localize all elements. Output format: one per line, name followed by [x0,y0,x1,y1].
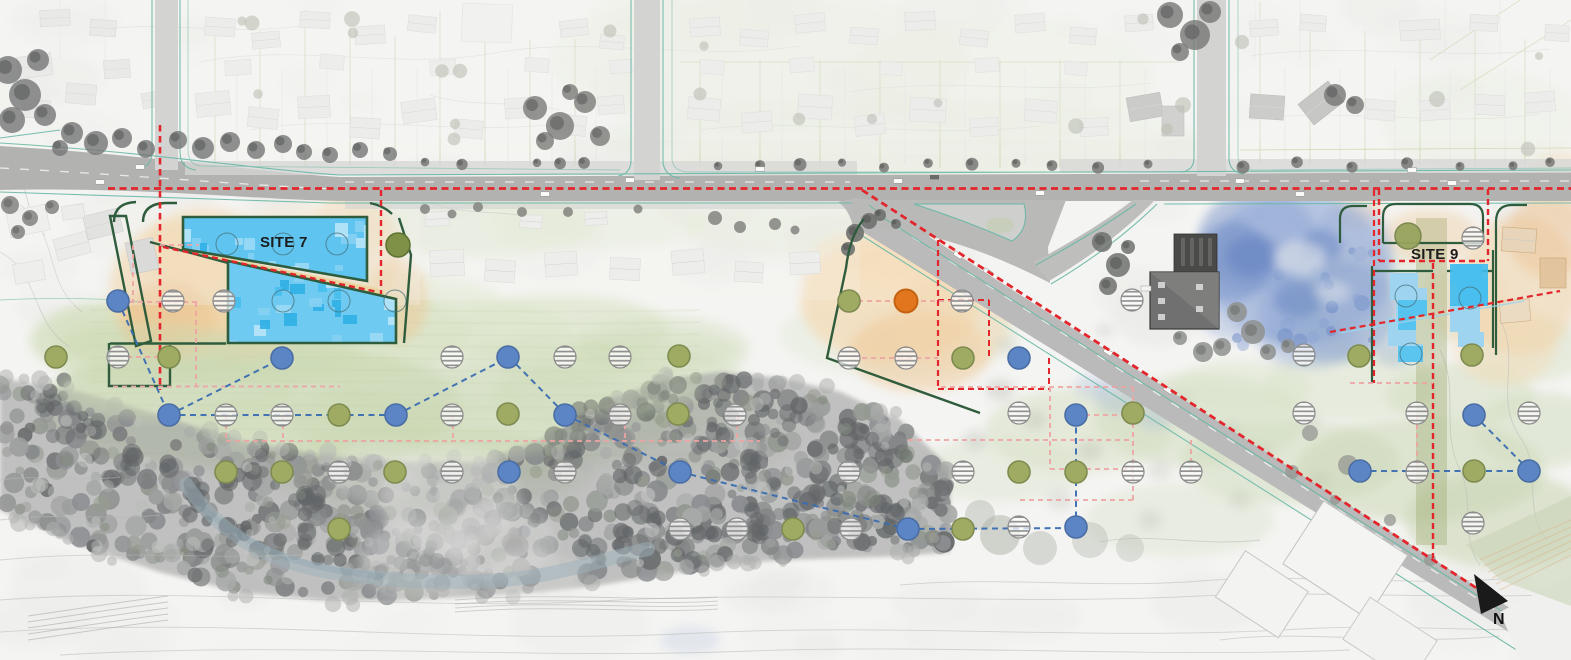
svg-text:N: N [1493,611,1505,628]
svg-text:SITE 7: SITE 7 [260,234,308,251]
